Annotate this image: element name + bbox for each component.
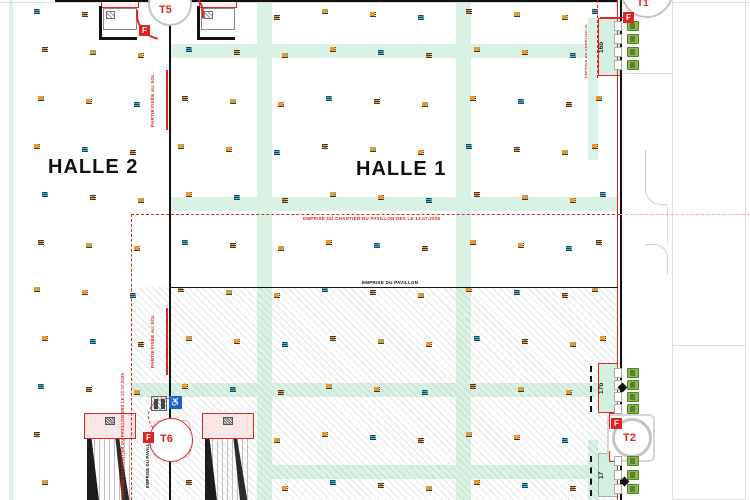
crane-t1-label: T1 [637,0,649,9]
fixed-part-label-1: PARTIE FIXÉE AU SOL [151,70,160,130]
chantier-label-vertical: EMPRISE DU CHANTIER DU PAVILLON DES LE 1… [121,372,130,500]
exterior-curb-line [667,204,668,244]
door-opening [614,456,622,466]
stair-structure-top-left [101,0,141,42]
partition-dash-17 [590,456,592,496]
door-icon [627,60,639,70]
elevator-icon [151,396,167,411]
door-icon [627,456,639,466]
pavilion-outline-label: EMPRISE DU PAVILLON [362,280,418,285]
door-opening [614,484,622,494]
door-opening [614,21,622,31]
hall-1-title: HALLE 1 [356,158,446,181]
door-icon [627,368,639,378]
crane-t1-f-badge: F [623,12,634,23]
stair-structure-top-right [199,0,239,42]
crane-t2-label: T2 [623,432,636,444]
crane-t6-f-badge: F [143,432,154,443]
chantier-dashed-line-vertical [131,214,132,500]
escalator-landing [202,413,254,439]
chantier-dashed-line-horizontal-ext [620,214,750,215]
door-icon [627,380,639,390]
door-icon [627,34,639,44]
door-opening [614,404,622,414]
wheelchair-access-icon: ♿ [169,396,182,409]
door-opening [614,368,622,378]
t2-red-segment-2 [609,413,610,429]
hall-2-title: HALLE 2 [48,156,138,179]
mast-fixed-segment-1 [166,70,168,130]
fixed-part-label-2: PARTIE FIXÉE AU SOL [151,308,160,375]
door-icon [627,392,639,402]
stair-wall-corner [99,6,137,40]
door-opening [614,34,622,44]
door-icon [627,470,639,480]
door-opening [614,60,622,70]
partition-dash-17b [590,366,592,412]
crane-t2-f-badge: F [611,418,622,429]
crane-t5-label: T5 [159,4,172,16]
exterior-curb-curve-2 [645,244,668,274]
t2-red-segment-3 [609,451,610,461]
chantier-dashed-line-northeast [597,0,598,78]
exterior-building-outline [672,345,746,500]
chantier-dashed-line-horizontal [131,214,620,215]
chantier-label-vertical-east: EMPRISE DU CHANTIER DU PAVILLON DES LE 1… [585,24,592,78]
crane-t6-label: T6 [160,433,173,445]
door-opening [614,392,622,402]
door-icon [627,47,639,57]
door-icon [627,484,639,494]
chantier-label-horizontal: EMPRISE DU CHANTIER DU PAVILLON DES LE 1… [303,216,440,221]
door-icon [627,404,639,414]
door-opening [614,47,622,57]
crane-t5-f-badge: F [139,25,150,36]
exterior-line-3 [622,73,672,74]
pavilion-outline-line [169,287,618,288]
t1-connector [600,17,623,18]
exterior-curb-curve-1 [645,150,668,205]
floor-plan: EMPRISE DU PAVILLON EMPRISE DU CHANTIER … [0,0,750,500]
mast-fixed-segment-2 [166,308,168,375]
escalator-structure-bottom-right [202,410,258,500]
